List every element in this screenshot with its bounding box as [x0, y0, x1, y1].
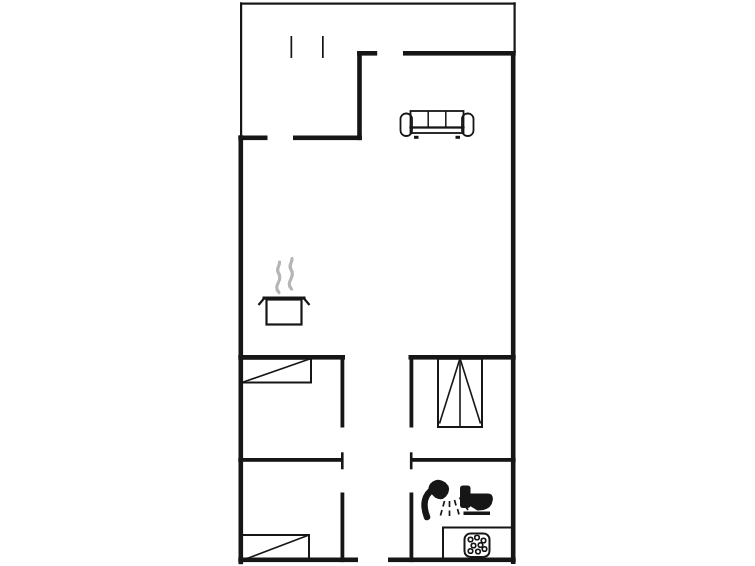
- steam-icon: [277, 259, 293, 293]
- sofa-icon: [401, 111, 474, 139]
- door-jamb-caps: [341, 452, 413, 469]
- floor-plan-svg: [0, 0, 755, 566]
- wardrobe-icon: [438, 359, 482, 428]
- terrace-walls-thin: [240, 3, 516, 139]
- floor-plan-canvas: [0, 0, 755, 566]
- whirlpool-icon: [465, 534, 490, 558]
- bed-icon-top: [242, 359, 311, 383]
- toilet-icon: [460, 486, 493, 516]
- bed-icon-bottom: [242, 535, 309, 561]
- cooking-pot-icon: [259, 297, 310, 325]
- terrace-opening-marks: [291, 36, 324, 58]
